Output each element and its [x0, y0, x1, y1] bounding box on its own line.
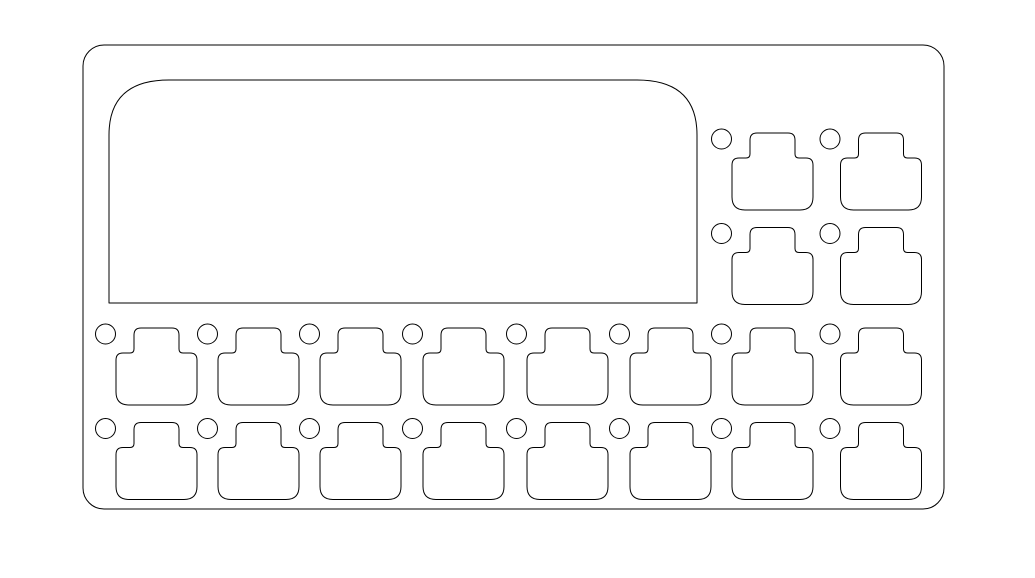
key-cutout-r2c5 [630, 328, 711, 405]
mounting-hole-r0c7 [820, 129, 840, 149]
mounting-hole-r2c3 [403, 324, 423, 344]
mounting-hole-r3c6 [712, 419, 732, 439]
key-cutout-r3c3 [423, 423, 504, 500]
key-cutout-r2c3 [423, 328, 504, 405]
key-cutout-r2c7 [841, 328, 922, 405]
mounting-hole-r3c5 [610, 419, 630, 439]
mounting-hole-r3c7 [820, 419, 840, 439]
key-cutout-r3c4 [527, 423, 608, 500]
board-outline [83, 45, 944, 509]
mounting-hole-r3c0 [96, 419, 116, 439]
mounting-hole-r0c6 [712, 129, 732, 149]
key-cutout-r3c2 [320, 423, 401, 500]
key-cutout-r0c6 [732, 133, 813, 210]
mounting-hole-r3c4 [507, 419, 527, 439]
mounting-hole-r2c5 [610, 324, 630, 344]
mounting-hole-r3c3 [403, 419, 423, 439]
key-cutout-r1c6 [732, 228, 813, 305]
key-cutout-r2c2 [320, 328, 401, 405]
screen-cutout [109, 80, 697, 303]
mounting-hole-r2c6 [712, 324, 732, 344]
key-cutout-r3c0 [116, 423, 197, 500]
plate-drawing [0, 0, 1035, 578]
key-cutout-r3c6 [732, 423, 813, 500]
key-cutout-r2c4 [527, 328, 608, 405]
mounting-hole-r3c1 [198, 419, 218, 439]
key-cutout-r3c1 [218, 423, 299, 500]
mounting-hole-r2c1 [198, 324, 218, 344]
key-cutout-r3c5 [630, 423, 711, 500]
key-cutout-r2c6 [732, 328, 813, 405]
mounting-hole-r2c4 [507, 324, 527, 344]
mounting-hole-r2c2 [300, 324, 320, 344]
mounting-hole-r2c7 [820, 324, 840, 344]
mounting-hole-r3c2 [300, 419, 320, 439]
mounting-hole-r2c0 [96, 324, 116, 344]
key-cutout-r2c1 [218, 328, 299, 405]
key-cutout-r0c7 [841, 133, 922, 210]
mounting-hole-r1c6 [712, 224, 732, 244]
key-cutout-r3c7 [841, 423, 922, 500]
key-cutout-r2c0 [116, 328, 197, 405]
key-cutout-r1c7 [841, 228, 922, 305]
mounting-hole-r1c7 [820, 224, 840, 244]
drawing-canvas [0, 0, 1035, 578]
